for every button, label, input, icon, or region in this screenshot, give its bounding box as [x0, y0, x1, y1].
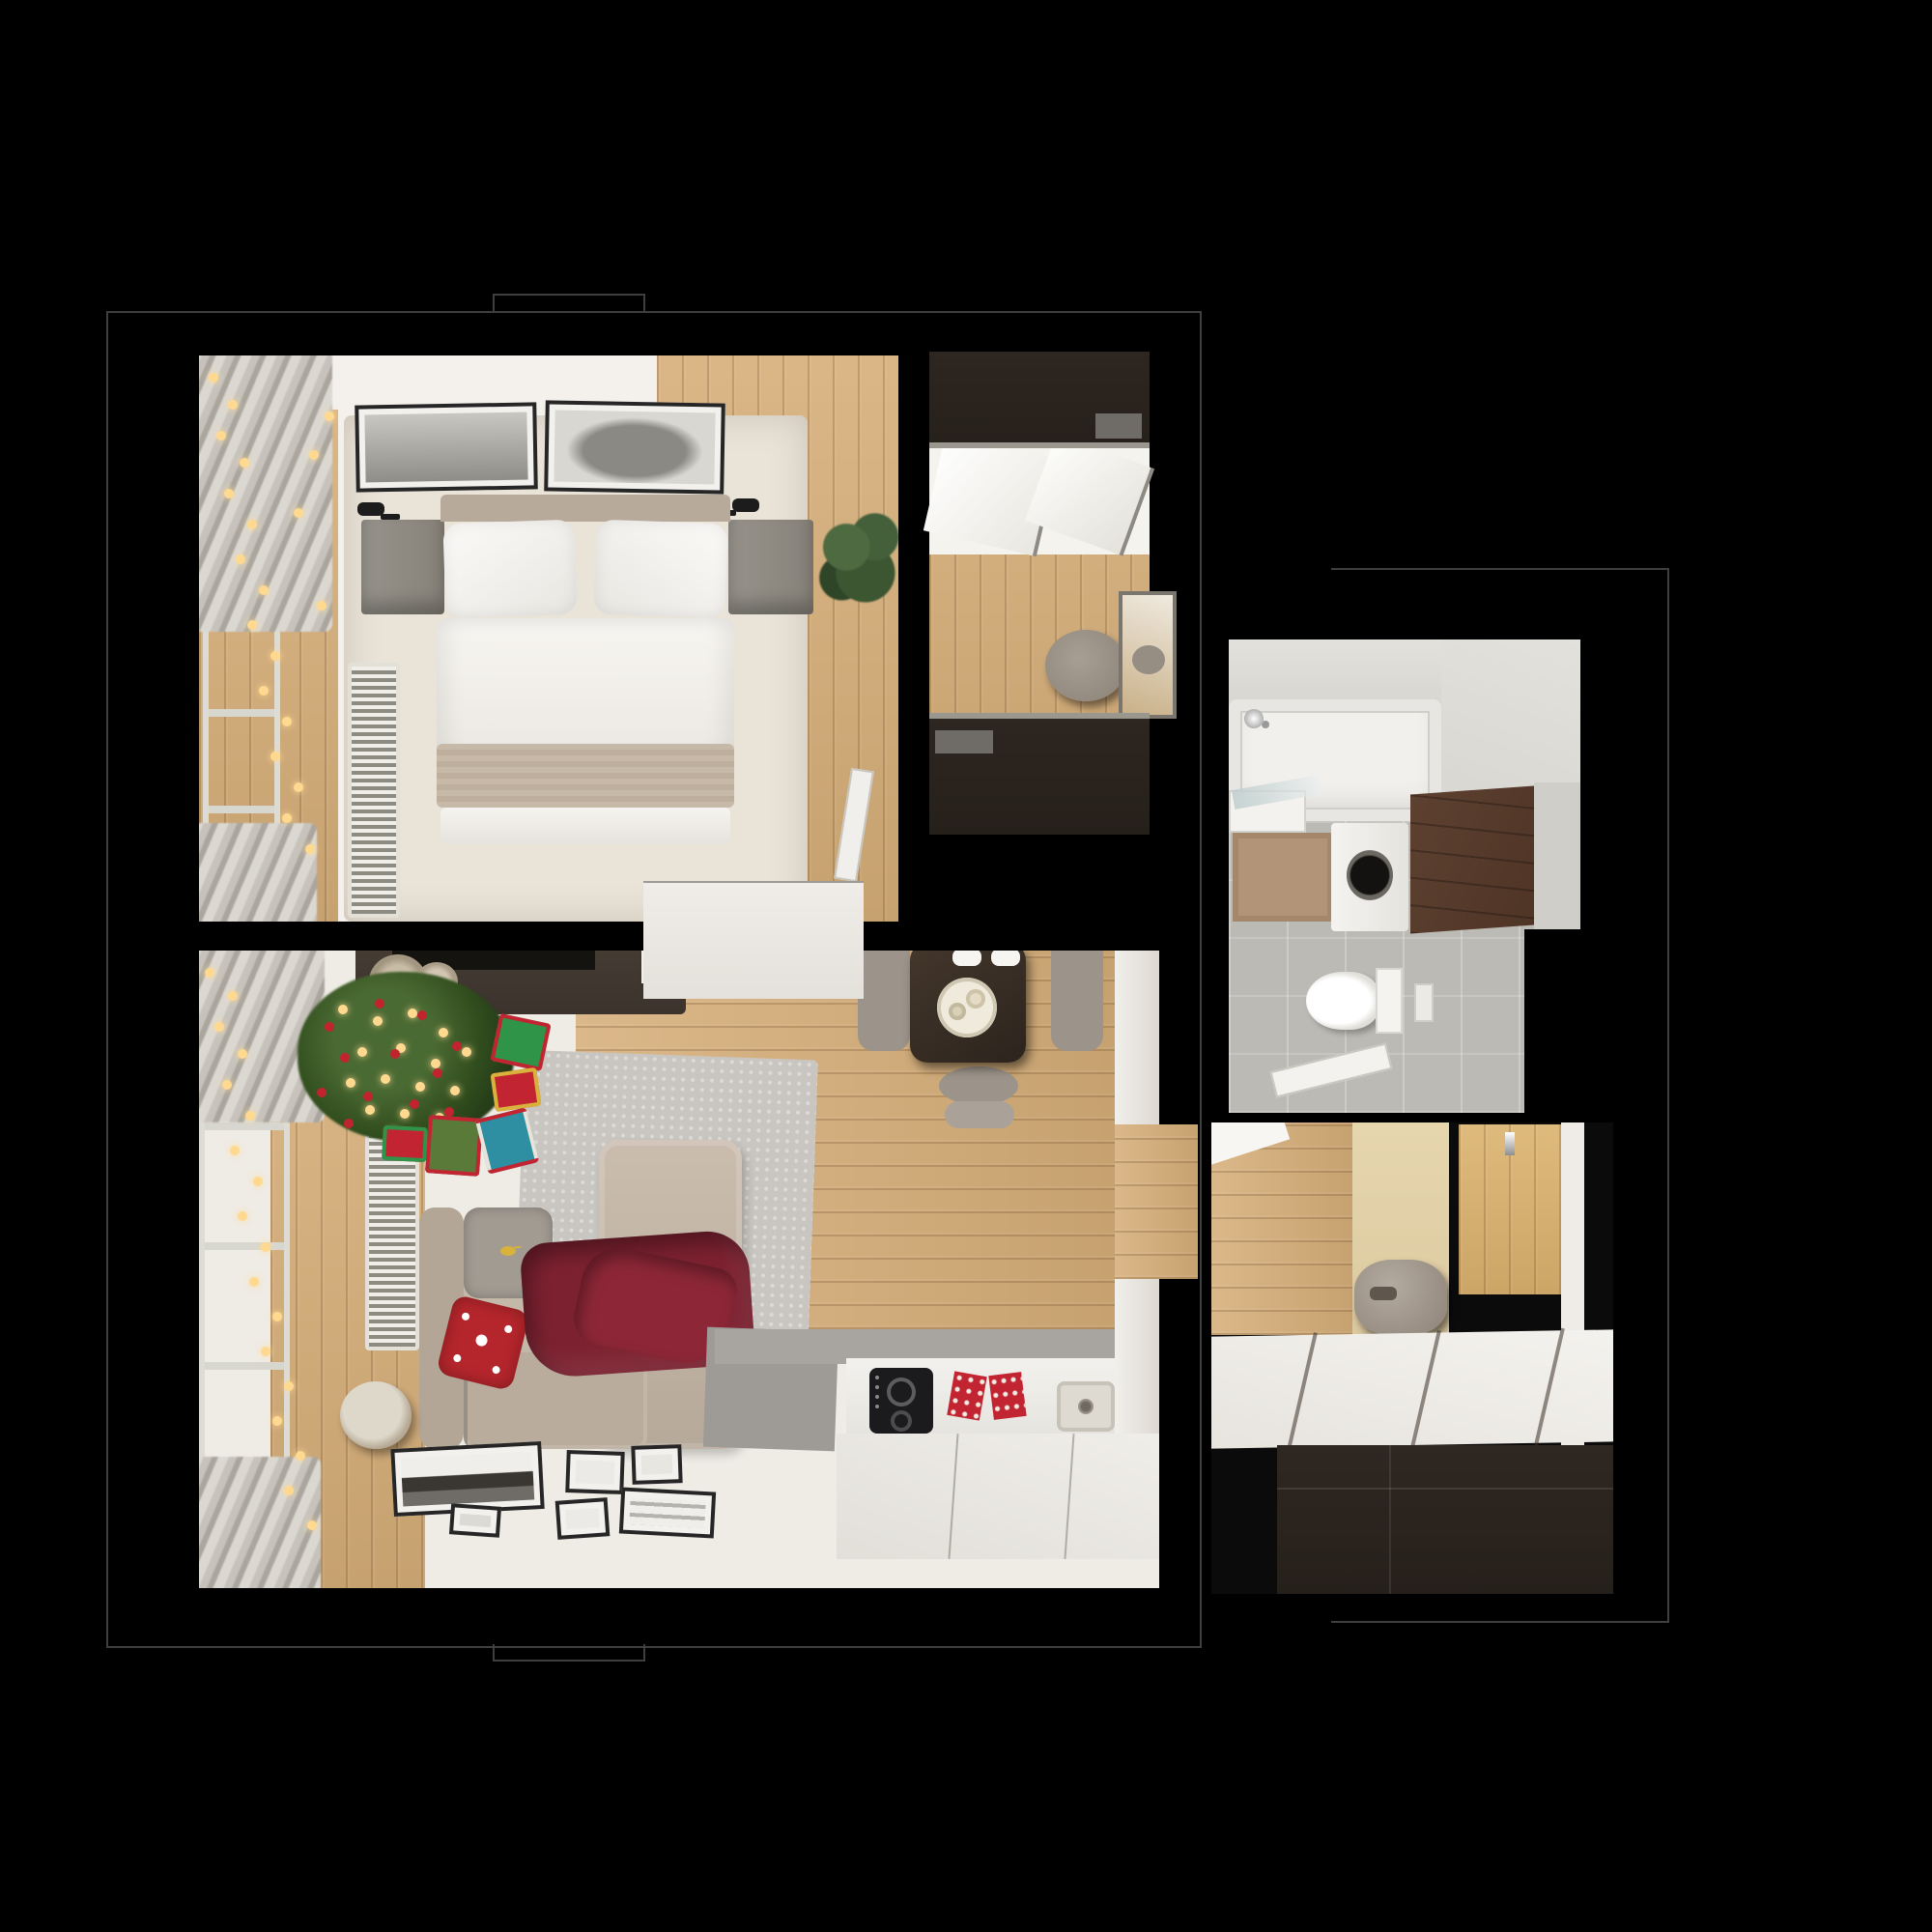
coat-hook-icon	[1505, 1132, 1515, 1155]
bed-pillow-right	[593, 520, 727, 619]
floor-frame-2-art	[576, 1460, 615, 1484]
wall-lamp-left-icon	[357, 502, 384, 516]
living-kitchen	[199, 951, 1198, 1588]
living-curtain-bottom	[199, 1457, 321, 1588]
floor-frame-3	[631, 1444, 682, 1485]
partition-pier-top	[1115, 951, 1159, 1124]
outline-top-step	[493, 294, 645, 313]
wall-black-upper	[1159, 951, 1198, 1124]
dining-chair-right	[1051, 951, 1103, 1051]
entry-dark-cabinet	[1277, 1445, 1613, 1594]
gift-box-red-gold	[490, 1067, 541, 1112]
bedroom-curtain-top	[199, 355, 332, 632]
bedroom	[199, 355, 898, 922]
nightstand-right	[728, 520, 813, 614]
entry-hall	[1211, 1122, 1613, 1594]
floor-frame-3-art	[641, 1454, 673, 1474]
hall-pouf	[1045, 630, 1126, 701]
toilet-bowl	[1306, 972, 1379, 1030]
hall-mirror-pouf-reflection	[1132, 645, 1165, 674]
doorway-to-entry	[1115, 1124, 1198, 1279]
bed-headboard	[440, 495, 730, 522]
gift-box-green-1	[490, 1013, 551, 1071]
floor-frame-wide	[619, 1487, 716, 1538]
outline-bottom-step	[493, 1644, 645, 1662]
bathroom-lower-right-wall	[1524, 929, 1580, 1113]
floor-frame-2	[565, 1450, 624, 1494]
washing-machine	[1331, 823, 1408, 931]
dark-cabinet-seam-2	[1389, 1445, 1391, 1594]
hall-wardrobe-plate	[1095, 413, 1142, 439]
hall-cabinet-plate	[935, 730, 993, 753]
bathroom-gray-cabinet	[1534, 782, 1580, 929]
white-console-sideboard	[643, 881, 864, 999]
kitchen-cabinet-fronts	[837, 1434, 1184, 1559]
wardrobe-hall	[929, 352, 1150, 835]
cup-2	[966, 989, 985, 1009]
bedroom-curtain-bottom	[199, 823, 317, 922]
floor-frame-4-art	[460, 1514, 492, 1527]
floorplan-stage	[0, 0, 1932, 1932]
bedroom-framed-art-1	[355, 402, 538, 492]
snowflake-pattern	[474, 1333, 489, 1348]
dark-cabinet-seam	[1277, 1488, 1613, 1490]
washing-machine-door-icon	[1347, 850, 1393, 900]
christmas-tree	[298, 972, 514, 1142]
bedroom-radiator	[348, 663, 400, 918]
bathroom	[1229, 639, 1580, 1113]
wall-black-lower	[1159, 1279, 1198, 1588]
floor-frame-5-art	[565, 1508, 599, 1529]
entry-roll-pouf	[1354, 1260, 1447, 1335]
bath-mat	[1233, 833, 1333, 922]
wardrobe-top-seam-1	[1287, 1332, 1318, 1450]
roll-pouf-slot	[1370, 1287, 1397, 1300]
bedroom-framed-art-2	[544, 400, 725, 494]
dining-chair-bottom-cushion	[945, 1101, 1014, 1128]
tree-foliage	[298, 972, 514, 1142]
burner-1	[887, 1378, 916, 1406]
living-fairy-lights	[207, 970, 213, 976]
cup-1	[949, 1003, 966, 1020]
apartment-render	[0, 0, 1932, 1932]
potted-plant	[813, 506, 898, 609]
tree-ornaments	[325, 1022, 334, 1032]
wardrobe-top-seam-2	[1410, 1330, 1441, 1448]
bathroom-walnut-cabinet	[1410, 786, 1534, 934]
induction-cooktop	[869, 1368, 933, 1434]
kitchen-sink	[1057, 1381, 1115, 1432]
burner-2	[891, 1410, 912, 1432]
sink-drain	[1078, 1399, 1094, 1414]
floor-frame-large-art	[401, 1451, 534, 1506]
hall-mirror	[1119, 591, 1177, 719]
nightstand-left	[361, 520, 444, 614]
bed-foot-bench	[440, 808, 730, 844]
wall-lamp-right-icon	[732, 498, 759, 512]
bathtub-faucet-icon	[1244, 709, 1264, 728]
floor-frame-4	[449, 1503, 501, 1538]
hall-cabinet-rail	[929, 713, 1150, 719]
partition-pier-bottom	[1115, 1279, 1159, 1434]
bed-pillow-left	[442, 520, 577, 619]
dining-chair-left	[858, 951, 910, 1051]
drum-side-table	[340, 1381, 412, 1449]
hall-wardrobe-rail	[929, 442, 1150, 448]
bed-duvet	[437, 618, 734, 757]
toilet-tank	[1376, 968, 1403, 1034]
gift-box-green-2	[425, 1115, 483, 1177]
bed-throw-blanket	[437, 744, 734, 808]
floor-frame-5	[555, 1497, 611, 1540]
dining-chair-bottom-seat	[939, 1066, 1018, 1105]
art-1	[364, 412, 527, 483]
bedroom-fairy-lights	[211, 375, 216, 381]
cooktop-controls	[875, 1376, 879, 1379]
toilet-flush-plate	[1414, 983, 1434, 1022]
tree-lights	[340, 1007, 346, 1012]
serving-tray	[937, 978, 997, 1037]
wardrobe-top-seam-3	[1534, 1328, 1565, 1446]
cabinet-seam-1	[948, 1434, 958, 1559]
floor-frame-wide-art	[629, 1497, 705, 1528]
cabinet-seam-2	[1064, 1434, 1074, 1559]
entry-wardrobe-top	[1211, 1329, 1613, 1448]
gift-box-red-green	[382, 1125, 428, 1162]
dining-table	[910, 951, 1026, 1063]
kitchen-towel-2	[988, 1372, 1026, 1420]
bathroom-door-leaf	[1269, 1042, 1392, 1097]
plate-1	[952, 951, 981, 966]
art-2	[554, 411, 715, 485]
gold-bird-figurine-icon	[500, 1246, 516, 1256]
plate-2	[991, 951, 1020, 966]
